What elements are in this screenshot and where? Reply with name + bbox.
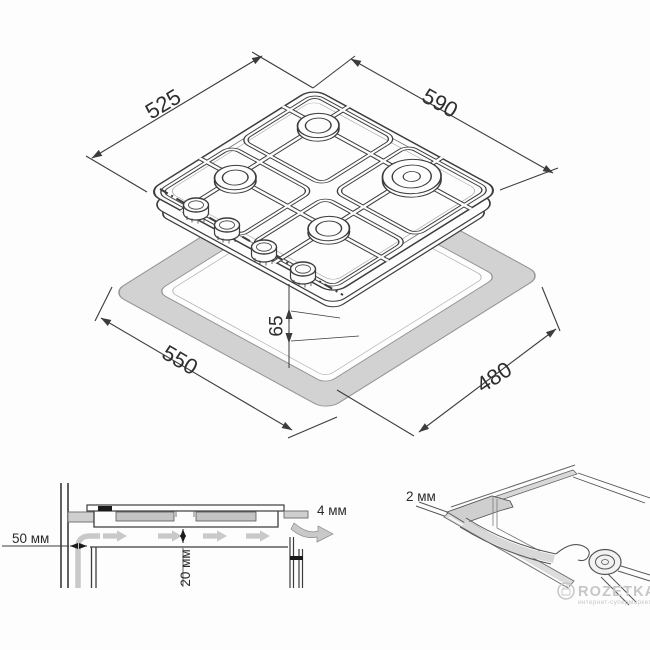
isometric-view: 525 590 550 480 65 [86,52,560,438]
label-bottom-clearance: 20 мм [178,549,193,586]
section-view: 50 мм 20 мм 4 мм [2,483,347,588]
label-wall-clearance: 50 мм [12,531,49,546]
seal-tape-roll [589,550,621,575]
airflow-arrows [103,530,270,541]
watermark-tagline: интернет-супермаркет [578,599,650,606]
extension-line [313,56,355,88]
hob-top-plate [87,505,284,511]
watermark: ROZETKA интернет-супермаркет [558,583,650,606]
burner-housing [196,512,256,521]
hinge-tick [290,556,303,560]
extension-line [252,52,313,88]
seal-strip-edge [416,502,450,517]
label-seal-thickness: 2 мм [406,489,436,504]
airflow-path [78,536,100,588]
gasket-curl [556,545,589,561]
watermark-brand: ROZETKA [578,584,650,600]
countertop-edge-lines [573,473,650,503]
extension-line [95,287,112,321]
cabinet-section [90,537,303,588]
dimension-label-525: 525 [141,84,185,124]
extension-line [288,417,337,438]
extension-line [86,156,147,192]
dimension-label-65: 65 [267,315,288,336]
countertop-right [284,511,308,518]
label-rear-vent: 4 мм [317,503,347,518]
extension-line [542,287,560,331]
burner-cap-section [98,506,112,511]
extension-line [337,390,414,436]
dimension-label-590: 590 [418,83,462,123]
hob-installation-diagram: 525 590 550 480 65 [0,0,650,650]
vent-arrow [291,523,333,542]
hob-section [87,505,308,527]
dimension-label-480: 480 [472,357,516,398]
wall [61,483,68,588]
burner-housing [116,512,174,521]
installation-diagram-page: 525 590 550 480 65 [0,0,650,650]
